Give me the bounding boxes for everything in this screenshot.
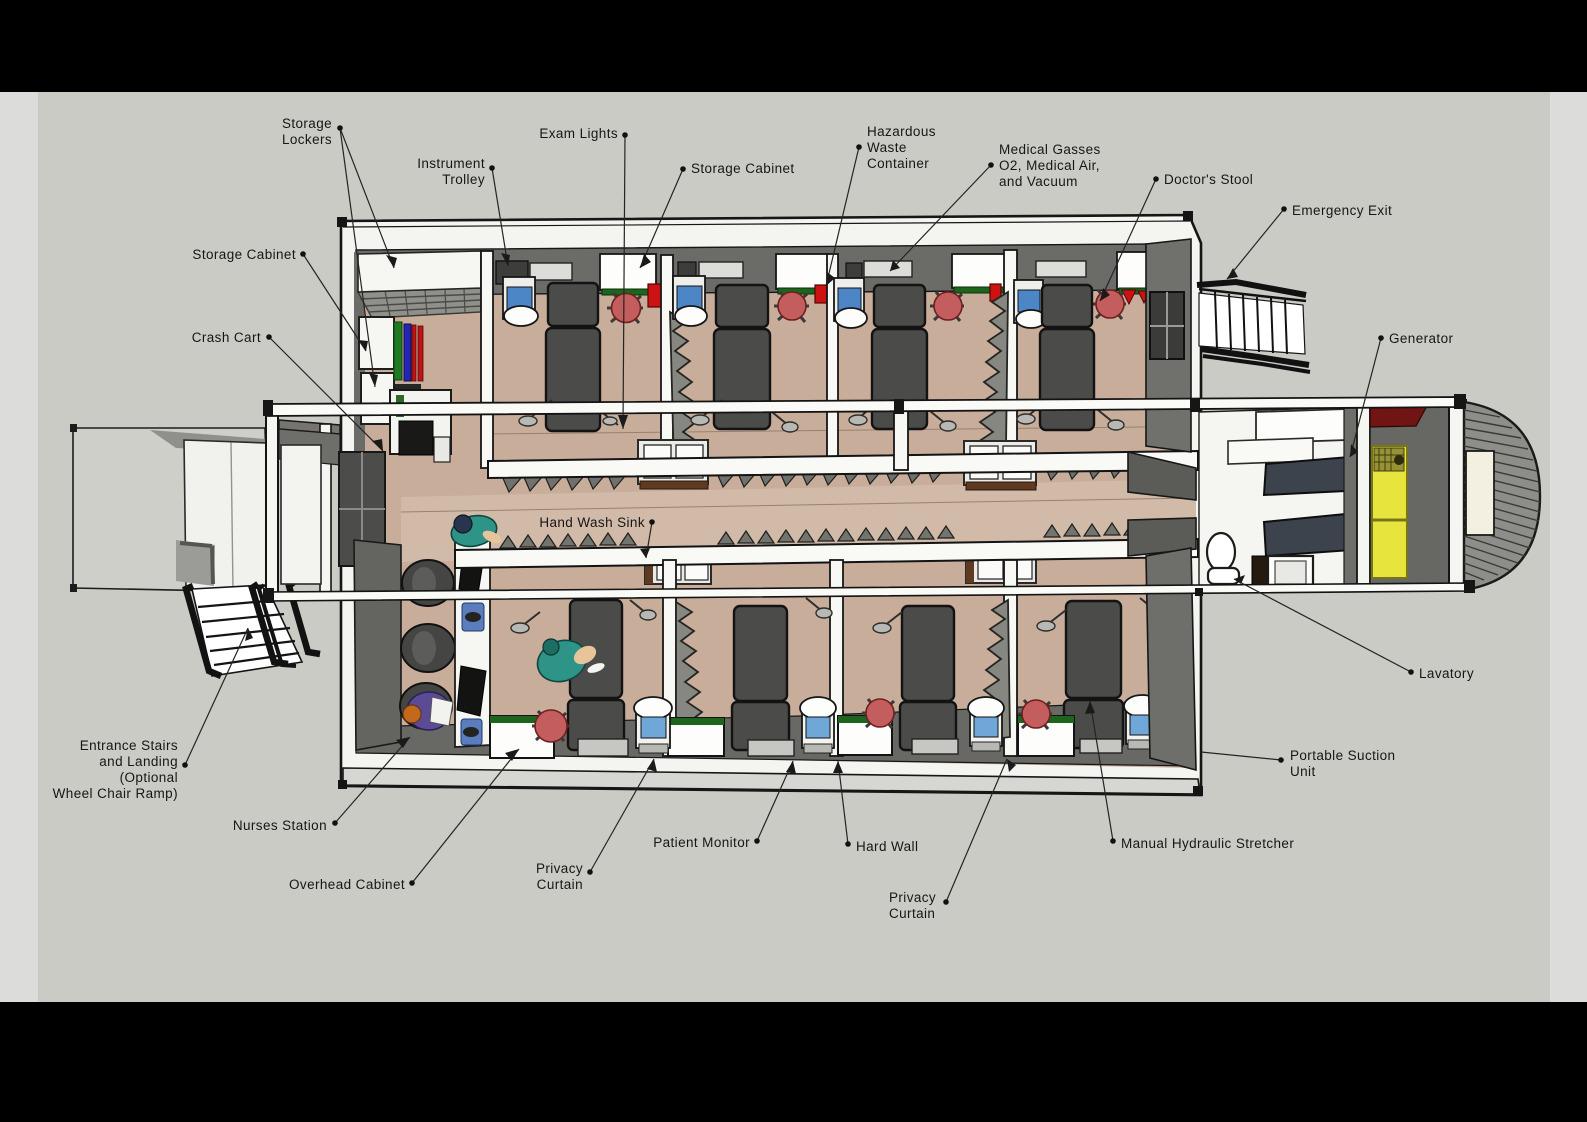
svg-text:Lavatory: Lavatory xyxy=(1419,666,1474,681)
svg-text:Storage Cabinet: Storage Cabinet xyxy=(192,247,296,262)
svg-text:Portable Suction: Portable Suction xyxy=(1290,748,1395,763)
svg-text:Curtain: Curtain xyxy=(889,906,935,921)
svg-text:Curtain: Curtain xyxy=(537,877,583,892)
svg-text:Crash Cart: Crash Cart xyxy=(192,330,261,345)
svg-text:O2, Medical Air,: O2, Medical Air, xyxy=(999,158,1100,173)
svg-text:Hazardous: Hazardous xyxy=(867,124,936,139)
svg-text:Emergency Exit: Emergency Exit xyxy=(1292,203,1392,218)
svg-text:Exam Lights: Exam Lights xyxy=(539,126,618,141)
svg-text:Nurses Station: Nurses Station xyxy=(233,818,327,833)
svg-text:Storage: Storage xyxy=(282,116,332,131)
svg-text:Instrument: Instrument xyxy=(417,156,485,171)
svg-text:Entrance Stairs: Entrance Stairs xyxy=(80,738,178,753)
svg-text:Trolley: Trolley xyxy=(442,172,485,187)
svg-text:Privacy: Privacy xyxy=(889,890,936,905)
svg-text:Storage Cabinet: Storage Cabinet xyxy=(691,161,795,176)
svg-text:Doctor's Stool: Doctor's Stool xyxy=(1164,172,1253,187)
svg-text:(Optional: (Optional xyxy=(120,770,178,785)
svg-text:Privacy: Privacy xyxy=(536,861,583,876)
svg-text:Wheel Chair Ramp): Wheel Chair Ramp) xyxy=(53,786,178,801)
svg-text:Overhead Cabinet: Overhead Cabinet xyxy=(289,877,405,892)
svg-text:Generator: Generator xyxy=(1389,331,1453,346)
svg-text:Lockers: Lockers xyxy=(282,132,332,147)
svg-text:Unit: Unit xyxy=(1290,764,1316,779)
svg-text:Medical Gasses: Medical Gasses xyxy=(999,142,1101,157)
svg-text:Manual Hydraulic Stretcher: Manual Hydraulic Stretcher xyxy=(1121,836,1294,851)
svg-text:Hand Wash Sink: Hand Wash Sink xyxy=(539,515,645,530)
svg-text:and Landing: and Landing xyxy=(99,754,178,769)
svg-text:Patient Monitor: Patient Monitor xyxy=(653,835,750,850)
svg-text:Hard Wall: Hard Wall xyxy=(856,839,918,854)
svg-text:Waste: Waste xyxy=(867,140,907,155)
svg-text:and Vacuum: and Vacuum xyxy=(999,174,1078,189)
svg-text:Container: Container xyxy=(867,156,929,171)
